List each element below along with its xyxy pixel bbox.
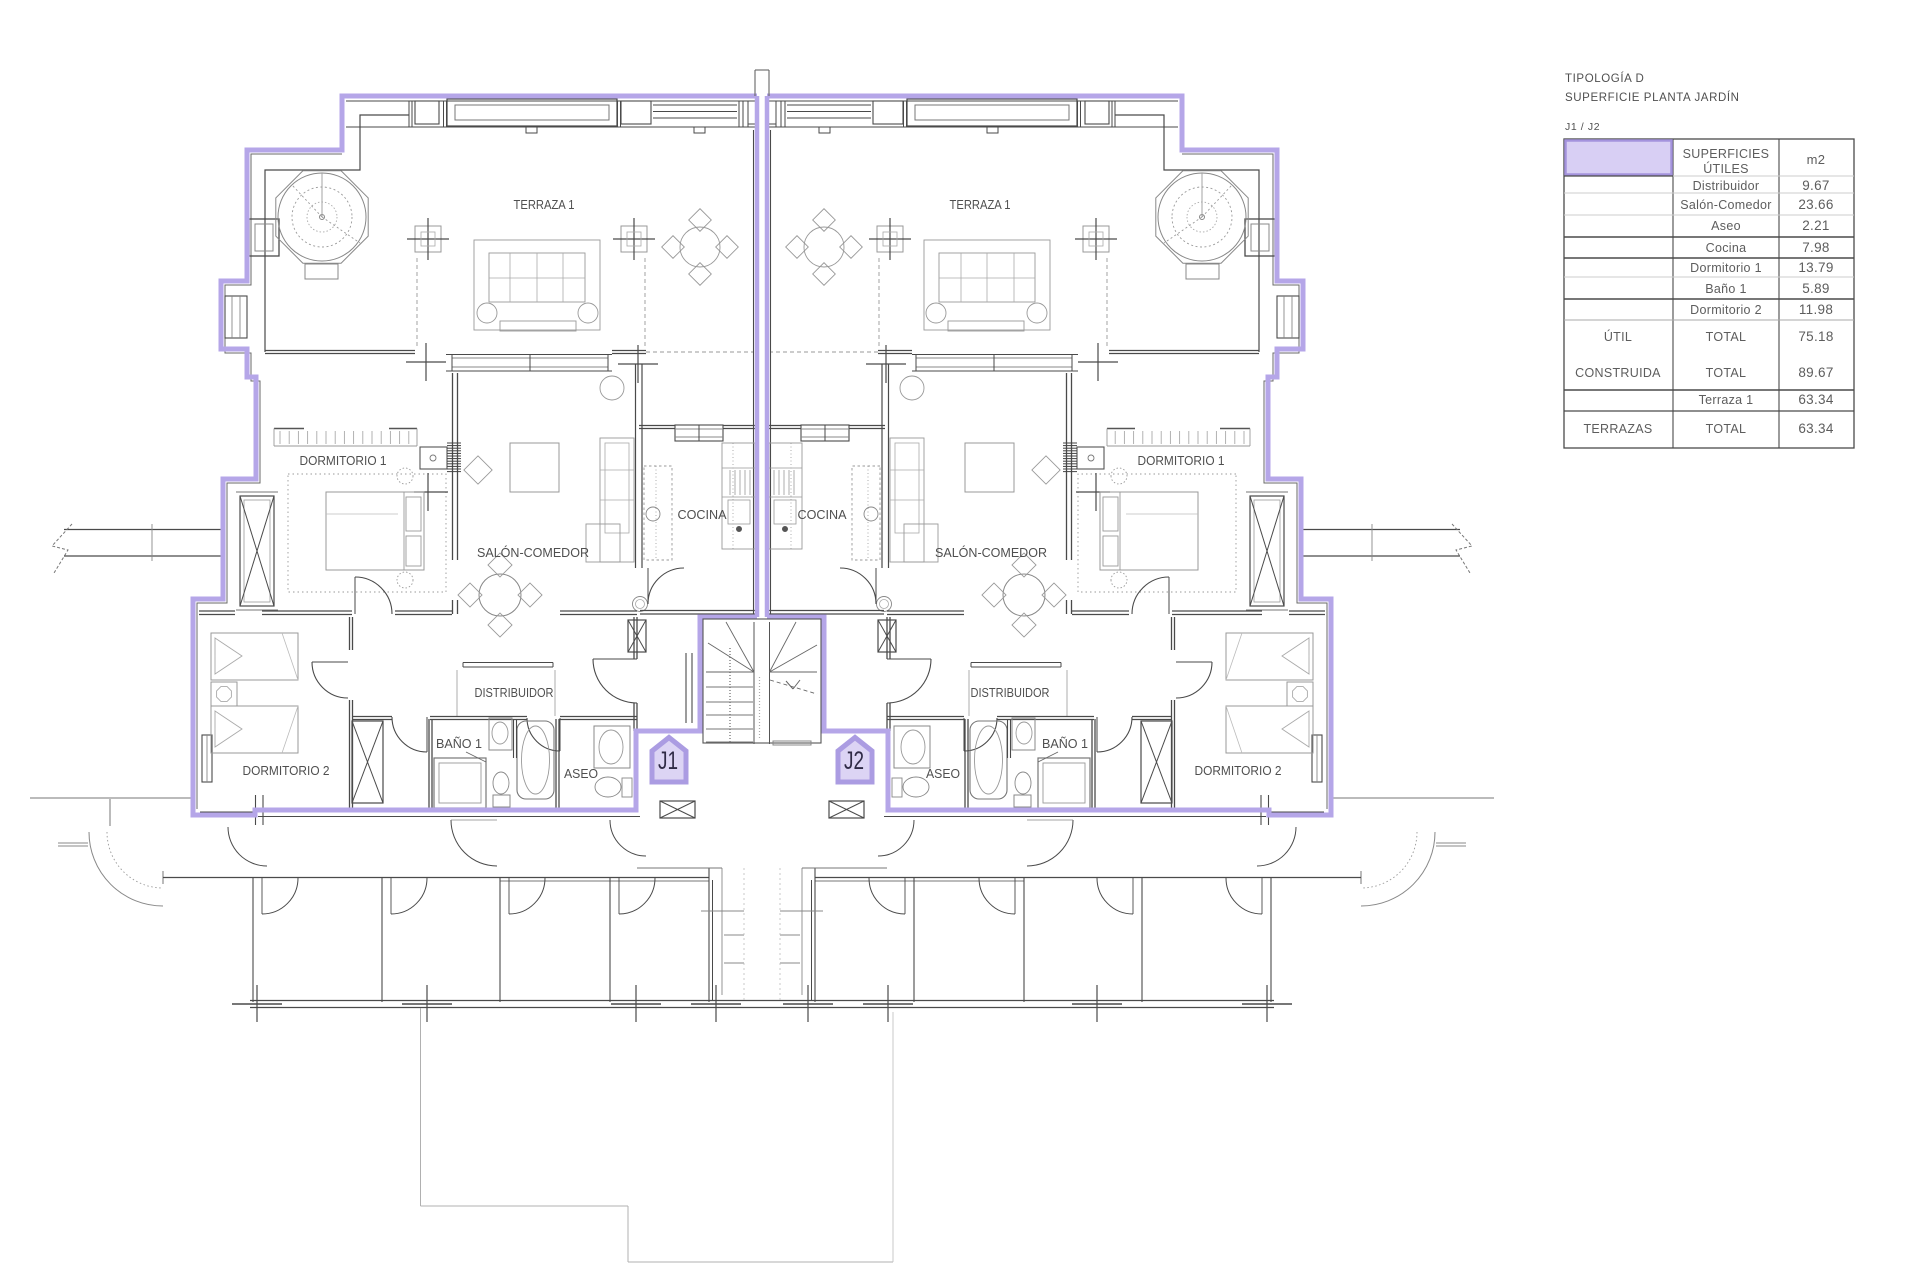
svg-text:J1 / J2: J1 / J2 <box>1565 121 1600 133</box>
svg-text:5.89: 5.89 <box>1802 281 1829 296</box>
svg-text:SALÓN-COMEDOR: SALÓN-COMEDOR <box>935 545 1047 560</box>
svg-text:2.21: 2.21 <box>1802 218 1829 233</box>
svg-text:m2: m2 <box>1807 152 1826 167</box>
svg-text:Cocina: Cocina <box>1706 241 1747 255</box>
svg-text:ASEO: ASEO <box>564 766 598 781</box>
svg-text:COCINA: COCINA <box>798 507 847 522</box>
svg-text:SALÓN-COMEDOR: SALÓN-COMEDOR <box>477 545 589 560</box>
svg-text:63.34: 63.34 <box>1798 421 1833 436</box>
svg-text:TOTAL: TOTAL <box>1706 330 1747 344</box>
svg-text:7.98: 7.98 <box>1802 240 1829 255</box>
svg-text:11.98: 11.98 <box>1799 302 1833 317</box>
svg-text:TERRAZA 1: TERRAZA 1 <box>950 197 1011 212</box>
svg-text:DORMITORIO 1: DORMITORIO 1 <box>300 453 387 468</box>
svg-text:DORMITORIO 2: DORMITORIO 2 <box>1195 763 1282 778</box>
svg-text:CONSTRUIDA: CONSTRUIDA <box>1575 366 1661 380</box>
svg-text:DORMITORIO 2: DORMITORIO 2 <box>243 763 330 778</box>
svg-text:TOTAL: TOTAL <box>1706 422 1747 436</box>
svg-text:ASEO: ASEO <box>926 766 960 781</box>
svg-text:75.18: 75.18 <box>1798 329 1833 344</box>
svg-text:TERRAZA 1: TERRAZA 1 <box>514 197 575 212</box>
svg-text:BAÑO 1: BAÑO 1 <box>1042 736 1088 751</box>
svg-text:9.67: 9.67 <box>1802 178 1829 193</box>
svg-text:DISTRIBUIDOR: DISTRIBUIDOR <box>971 685 1050 700</box>
svg-text:J1: J1 <box>658 747 678 775</box>
svg-text:SUPERFICIE PLANTA JARDÍN: SUPERFICIE PLANTA JARDÍN <box>1565 91 1740 104</box>
svg-text:Terraza 1: Terraza 1 <box>1699 393 1754 407</box>
svg-text:SUPERFICIES: SUPERFICIES <box>1683 147 1770 161</box>
svg-text:DISTRIBUIDOR: DISTRIBUIDOR <box>475 685 554 700</box>
svg-text:TOTAL: TOTAL <box>1706 366 1747 380</box>
svg-text:Dormitorio 1: Dormitorio 1 <box>1690 261 1762 275</box>
svg-text:23.66: 23.66 <box>1798 197 1833 212</box>
svg-text:Baño 1: Baño 1 <box>1705 282 1746 296</box>
svg-text:Salón-Comedor: Salón-Comedor <box>1680 198 1771 212</box>
svg-text:J2: J2 <box>844 747 864 775</box>
svg-text:63.34: 63.34 <box>1798 392 1833 407</box>
svg-text:ÚTILES: ÚTILES <box>1703 161 1749 176</box>
svg-text:TIPOLOGÍA D: TIPOLOGÍA D <box>1565 72 1644 85</box>
svg-text:DORMITORIO 1: DORMITORIO 1 <box>1138 453 1225 468</box>
svg-text:13.79: 13.79 <box>1798 260 1833 275</box>
svg-text:Aseo: Aseo <box>1711 219 1741 233</box>
svg-text:Distribuidor: Distribuidor <box>1693 179 1760 193</box>
svg-text:89.67: 89.67 <box>1798 365 1833 380</box>
svg-text:BAÑO 1: BAÑO 1 <box>436 736 482 751</box>
svg-text:COCINA: COCINA <box>678 507 727 522</box>
svg-text:TERRAZAS: TERRAZAS <box>1583 422 1652 436</box>
svg-text:ÚTIL: ÚTIL <box>1604 329 1632 344</box>
svg-text:Dormitorio 2: Dormitorio 2 <box>1690 303 1762 317</box>
